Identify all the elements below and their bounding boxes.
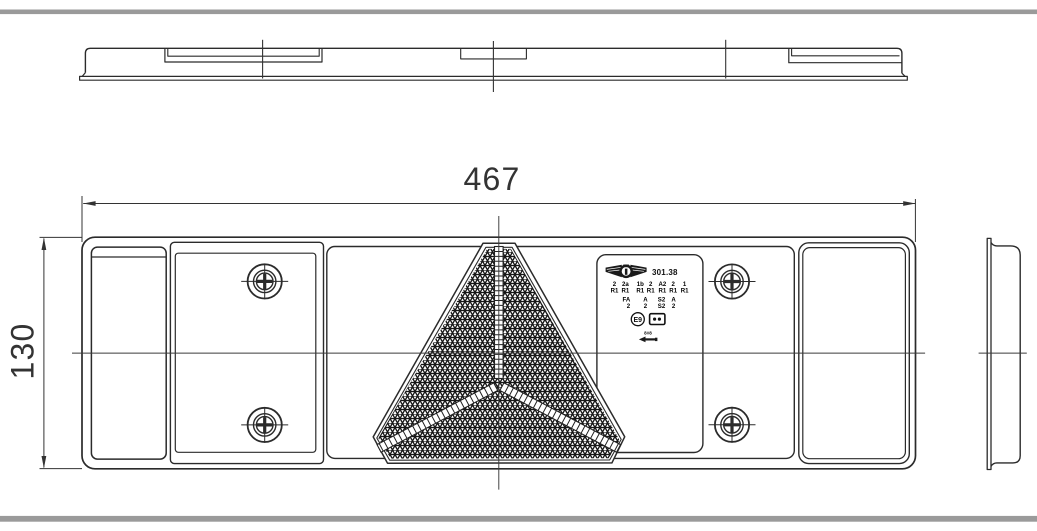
svg-text:2: 2	[644, 303, 648, 310]
svg-text:S2: S2	[658, 303, 666, 310]
svg-text:R1: R1	[647, 287, 655, 294]
svg-text:467: 467	[464, 161, 521, 197]
svg-text:8#8: 8#8	[644, 330, 652, 335]
svg-text:R1: R1	[611, 287, 619, 294]
svg-text:R1: R1	[669, 287, 677, 294]
svg-text:130: 130	[5, 323, 41, 380]
svg-text:E9: E9	[634, 317, 643, 324]
svg-text:R1: R1	[622, 287, 630, 294]
svg-text:301.38: 301.38	[652, 268, 678, 277]
svg-text:R1: R1	[636, 287, 644, 294]
svg-text:R1: R1	[681, 287, 689, 294]
svg-text:2: 2	[627, 303, 631, 310]
svg-text:R1: R1	[659, 287, 667, 294]
